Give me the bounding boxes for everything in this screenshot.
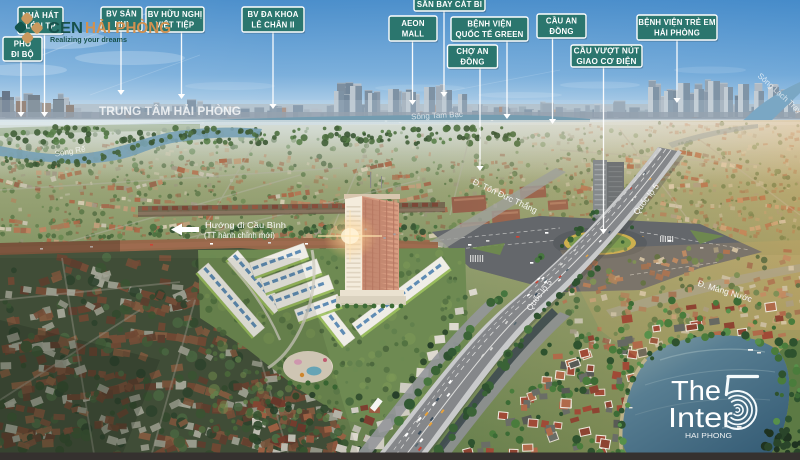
svg-text:CEN: CEN — [48, 20, 83, 37]
svg-text:SÂN BAY CÁT BI: SÂN BAY CÁT BI — [417, 0, 482, 9]
svg-text:BỆNH VIỆN: BỆNH VIỆN — [467, 20, 511, 29]
svg-text:GIAO CƠ ĐIỆN: GIAO CƠ ĐIỆN — [576, 55, 636, 66]
svg-text:Inter: Inter — [668, 402, 733, 433]
svg-text:CHỢ AN: CHỢ AN — [456, 47, 488, 56]
svg-text:ĐI BỘ: ĐI BỘ — [11, 50, 34, 59]
svg-text:BỆNH VIỆN TRẺ EM: BỆNH VIỆN TRẺ EM — [638, 18, 715, 27]
svg-text:HẢI PHÒNG: HẢI PHÒNG — [85, 18, 171, 37]
svg-text:LÊ CHÂN II: LÊ CHÂN II — [251, 21, 294, 30]
svg-text:BV SẢN: BV SẢN — [106, 10, 137, 19]
svg-text:MALL: MALL — [402, 30, 424, 39]
svg-text:AEON: AEON — [401, 19, 424, 28]
svg-text:BV HỮU NGHỊ: BV HỮU NGHỊ — [148, 10, 203, 19]
svg-text:QUỐC TẾ GREEN: QUỐC TẾ GREEN — [455, 29, 523, 39]
svg-text:ĐỒNG: ĐỒNG — [460, 57, 484, 67]
svg-text:CẦU VƯỢT NÚT: CẦU VƯỢT NÚT — [574, 45, 640, 56]
svg-text:TRUNG TÂM HẢI PHÒNG: TRUNG TÂM HẢI PHÒNG — [99, 103, 241, 118]
svg-text:Realizing your dreams: Realizing your dreams — [50, 37, 127, 44]
svg-text:HAI PHONG: HAI PHONG — [685, 433, 732, 440]
svg-text:CẦU AN: CẦU AN — [546, 16, 577, 26]
svg-text:Hướng đi Cầu Bình: Hướng đi Cầu Bình — [205, 221, 286, 230]
svg-text:ĐỒNG: ĐỒNG — [549, 26, 573, 36]
svg-text:HẢI PHÒNG: HẢI PHÒNG — [654, 29, 700, 38]
svg-text:(TT hành chính mới): (TT hành chính mới) — [204, 231, 275, 240]
svg-text:BV ĐA KHOA: BV ĐA KHOA — [247, 10, 298, 19]
